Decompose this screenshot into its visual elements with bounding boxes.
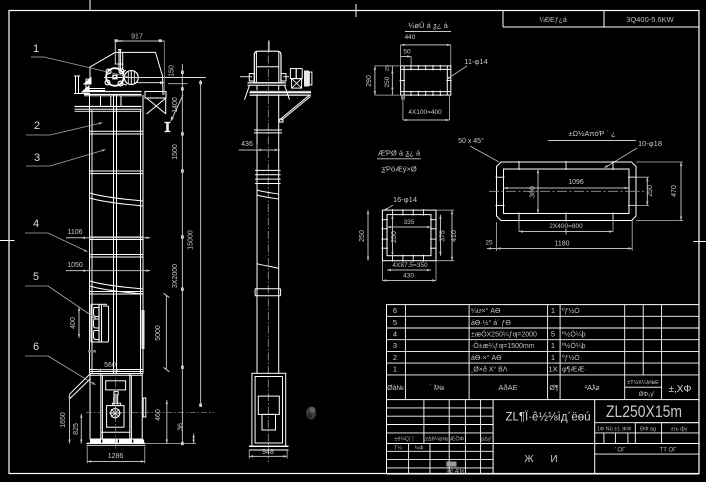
svg-text:948: 948: [262, 449, 274, 456]
svg-text:ØΦ₂ƴ: ØΦ₂ƴ: [639, 392, 656, 398]
svg-text:1286: 1286: [108, 453, 124, 460]
svg-text:360: 360: [530, 186, 537, 198]
svg-text:1500: 1500: [172, 144, 179, 160]
svg-text:±æÖX250¼ƒƣ=2000: ±æÖX250¼ƒƣ=2000: [471, 330, 537, 338]
svg-text:2: 2: [393, 353, 397, 362]
svg-text:,ƶΔθ¼þ№: ,ƶΔθ¼þ№: [424, 436, 449, 442]
svg-text:ΘΦ аɡ: ΘΦ аɡ: [640, 427, 656, 433]
svg-text:Øá№: Øá№: [387, 385, 404, 392]
svg-text:¼ư×° ΑƟ: ¼ư×° ΑƟ: [471, 307, 501, 315]
svg-text:50: 50: [403, 49, 411, 56]
svg-text:ºƒ½Ó: ºƒ½Ó: [562, 353, 580, 362]
svg-text:1X: 1X: [548, 365, 557, 374]
svg-text:440: 440: [405, 34, 416, 41]
svg-text:¸Ø×ð X° ΒΛ: ¸Ø×ð X° ΒΛ: [471, 366, 508, 374]
svg-text:´ ƛ№: ´ ƛ№: [429, 385, 444, 392]
svg-text:335: 335: [404, 219, 415, 226]
svg-text:1400: 1400: [172, 97, 179, 113]
svg-text:±,XΦ: ±,XΦ: [669, 384, 692, 395]
svg-text:1180: 1180: [554, 241, 569, 248]
svg-text:1106: 1106: [67, 229, 82, 236]
svg-text:1Φ Νû ±1 ЖΦ: 1Φ Νû ±1 ЖΦ: [597, 427, 632, 433]
svg-text:º½Ó¼þ: º½Ó¼þ: [562, 329, 586, 338]
svg-text:430: 430: [403, 273, 414, 280]
svg-text:470: 470: [671, 185, 678, 197]
svg-text:ΤΤ ΟГ: ΤΤ ΟГ: [660, 448, 678, 454]
svg-text:3Q400-5.6KW: 3Q400-5.6KW: [626, 15, 674, 24]
svg-text:ƺƤóÆý×Ø: ƺƤóÆý×Ø: [381, 165, 417, 174]
svg-text:ΑðΑΕ: ΑðΑΕ: [498, 383, 517, 392]
svg-text:6: 6: [393, 306, 397, 315]
svg-text:36: 36: [178, 423, 185, 431]
svg-text:10-φ18: 10-φ18: [638, 139, 662, 148]
svg-text:M: M: [401, 96, 406, 102]
svg-text:ºƒ½Ó: ºƒ½Ó: [562, 306, 580, 315]
svg-text:250: 250: [647, 185, 654, 197]
svg-text:1: 1: [33, 43, 39, 55]
svg-text:5: 5: [393, 318, 397, 327]
svg-text:±Ω½ΑπóƤ ´ ¿: ±Ω½ΑπóƤ ´ ¿: [568, 129, 616, 138]
svg-text:¼0 ÆМ: ¼0 ÆМ: [446, 469, 464, 475]
svg-text:′ ΟГ: ′ ΟГ: [615, 448, 626, 454]
svg-text:ZL¶Ї·ê½⅛ìд´ёөú: ZL¶Ї·ê½⅛ìд´ёөú: [505, 412, 590, 424]
svg-text:Ж: Ж: [524, 454, 534, 465]
svg-text:2: 2: [34, 120, 40, 132]
svg-text:¼Φ: ¼Φ: [415, 446, 425, 452]
svg-text:4: 4: [33, 218, 39, 230]
svg-text:¼ÐEƒ¿á: ¼ÐEƒ¿á: [539, 17, 567, 24]
svg-text:²Αƛƶ: ²Αƛƶ: [585, 383, 600, 392]
svg-text:5: 5: [551, 329, 555, 338]
svg-text:25: 25: [385, 65, 391, 71]
svg-text:±љ фү: ±љ фү: [671, 427, 688, 433]
svg-text:1: 1: [551, 341, 555, 350]
svg-text:рΔƴ: рΔƴ: [481, 436, 492, 442]
svg-text:5000: 5000: [155, 325, 162, 341]
svg-text:375: 375: [439, 230, 446, 242]
svg-text:4: 4: [393, 329, 397, 338]
svg-text:436: 436: [241, 141, 253, 148]
svg-text:560: 560: [104, 362, 116, 369]
svg-text:825: 825: [73, 423, 80, 435]
svg-text:3: 3: [393, 341, 397, 350]
svg-text:1096: 1096: [568, 179, 584, 186]
svg-text:250: 250: [391, 231, 398, 243]
svg-text:250: 250: [359, 230, 366, 242]
svg-text:ÆƤØ á ƺ¿ á: ÆƤØ á ƺ¿ á: [378, 149, 421, 158]
svg-text:Ø¶: Ø¶: [549, 385, 558, 392]
svg-text:4X100=400: 4X100=400: [408, 109, 442, 116]
svg-text:áƟ·×° ΑƟ: áƟ·×° ΑƟ: [471, 354, 502, 362]
svg-text:6: 6: [33, 341, 39, 353]
svg-text:±ê¼Ç|´¦: ±ê¼Ç|´¦: [394, 436, 413, 442]
svg-text:ZL250X15m: ZL250X15m: [606, 402, 682, 421]
svg-text:50 x 45°: 50 x 45°: [458, 137, 484, 145]
svg-text:400: 400: [70, 317, 77, 329]
svg-text:¼øÛ á ƺ¿ á: ¼øÛ á ƺ¿ á: [408, 21, 448, 30]
svg-text:25: 25: [485, 240, 493, 247]
svg-text:Τ¼: Τ¼: [394, 446, 402, 452]
svg-text:1: 1: [551, 353, 555, 362]
svg-text:16-φ14: 16-φ14: [393, 195, 417, 204]
svg-text:5: 5: [33, 271, 39, 283]
svg-text:1: 1: [551, 306, 555, 315]
svg-text:290: 290: [366, 75, 373, 87]
svg-text:410: 410: [451, 230, 458, 242]
svg-text:3: 3: [34, 152, 40, 164]
svg-text:250: 250: [384, 76, 391, 87]
svg-text:º½Ó¼þ: º½Ó¼þ: [562, 341, 586, 350]
svg-text:±Τ½X¼ƛ№E: ±Τ½X¼ƛ№E: [627, 379, 659, 386]
svg-text:1: 1: [393, 365, 397, 374]
svg-text:4X87.5=350: 4X87.5=350: [392, 262, 428, 269]
svg-text:ÆÖΦ: ÆÖΦ: [450, 435, 465, 442]
svg-text:11-φ14: 11-φ14: [464, 57, 488, 66]
svg-text:φ¶ÆÆ·: φ¶ÆÆ·: [562, 367, 587, 374]
svg-text:460: 460: [155, 409, 162, 421]
svg-text:3X2000: 3X2000: [172, 264, 179, 288]
svg-text:·Ö±æ¼ƒƣ=1500mm: ·Ö±æ¼ƒƣ=1500mm: [471, 342, 535, 350]
svg-text:И: И: [550, 454, 557, 465]
svg-text:1050: 1050: [67, 262, 83, 269]
svg-text:áƟ·½° á´ ƒƟ: áƟ·½° á´ ƒƟ: [471, 319, 511, 327]
svg-text:1650: 1650: [60, 412, 67, 428]
svg-text:15000: 15000: [188, 230, 195, 250]
svg-text:917: 917: [131, 34, 143, 41]
svg-text:150: 150: [169, 65, 176, 77]
